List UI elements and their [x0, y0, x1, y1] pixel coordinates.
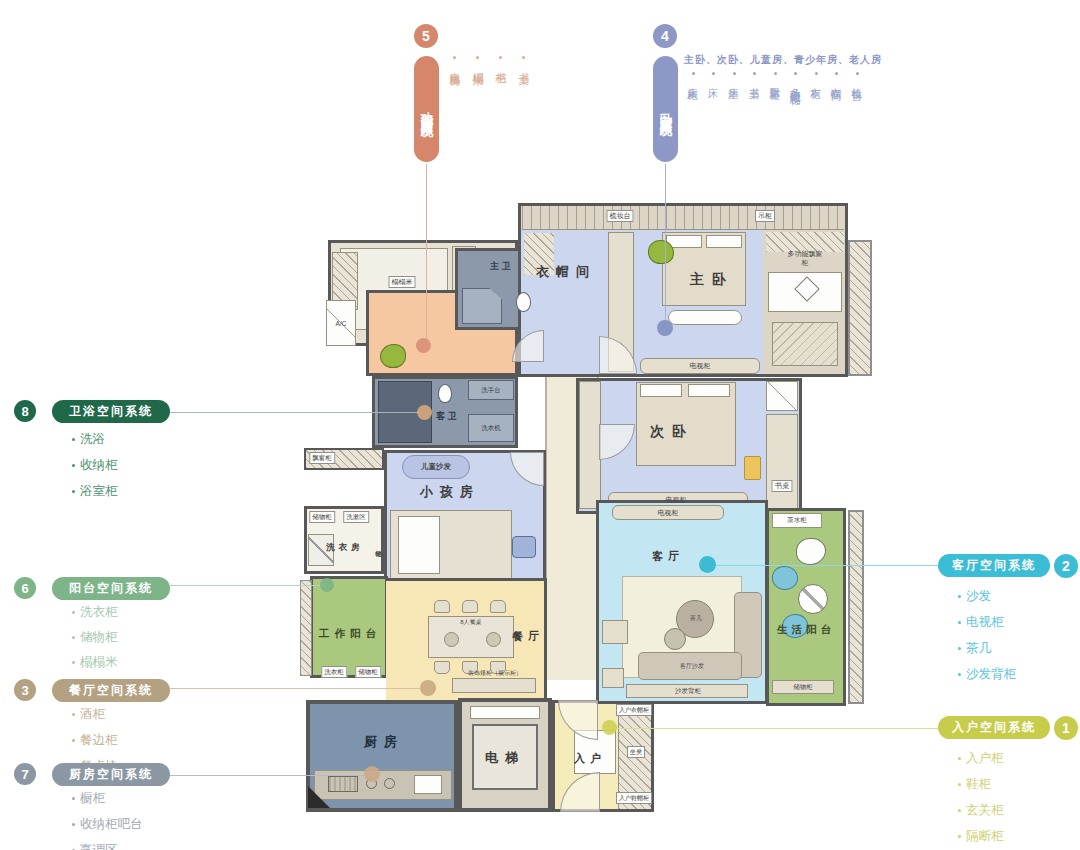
label-laundry-cabinet: 洗衣柜: [321, 666, 347, 678]
leader-line-functional: [426, 164, 427, 346]
low-cabinet: [452, 678, 536, 693]
leader-line-dining: [170, 688, 420, 689]
list-item: 洗衣柜: [80, 604, 118, 621]
callout-items-entry: 入户柜 鞋柜 玄关柜 隔断柜: [958, 750, 1004, 845]
label-tea-cabinet: 茶水柜: [787, 516, 807, 525]
callout-header-bedroom: 主卧、次卧、儿童房、青少年房、老人房: [684, 53, 882, 67]
ac-closet-2: [766, 381, 798, 411]
callout-number-living: 2: [1054, 554, 1078, 578]
list-item: 隔断柜: [966, 828, 1004, 845]
toilet-2: [438, 384, 452, 403]
room-label-entry: 入户: [574, 751, 606, 766]
marker-dot-living: [699, 556, 716, 573]
label-tv-cabinet-living: 电视柜: [658, 508, 679, 518]
list-item: 电视柜: [966, 614, 1004, 631]
room-label-master-bath: 主卫: [490, 260, 514, 273]
list-item: 餐边柜: [80, 732, 118, 749]
room-label-work-balcony: 工作阳台: [319, 627, 381, 641]
callout-items-bedroom: 床头柜 床 床垫 书桌 飘窗柜 多功能电视柜 衣柜 衣帽间 梳妆台: [686, 72, 864, 88]
toilet: [516, 292, 531, 312]
callout-title-bedroom: 卧室空间系统: [653, 56, 678, 162]
room-label-cloakroom: 衣帽间: [536, 263, 596, 281]
label-bay-window-cabinet-multi: 多功能飘窗柜: [785, 249, 825, 267]
marker-dot-functional: [416, 338, 431, 353]
stove-grill: [328, 776, 358, 792]
callout-title-living: 客厅空间系统: [938, 554, 1050, 577]
list-item: 鞋柜: [966, 776, 991, 793]
label-tv-cabinet: 电视柜: [666, 495, 687, 505]
leader-line-balcony: [170, 585, 324, 586]
label-hanging-cabinet: 吊柜: [755, 210, 775, 222]
leader-line-bedroom: [665, 164, 666, 328]
chaise: [772, 322, 838, 366]
list-item: 梳妆台: [850, 79, 864, 84]
label-living-sofa: 客厅沙发: [680, 662, 704, 671]
balcony-chair-blue: [772, 566, 798, 590]
room-label-guest-bath: 客卫: [436, 410, 460, 423]
kids-desk-chair: [512, 536, 536, 558]
room-label-laundry: 洗衣房: [326, 542, 364, 554]
chair: [434, 661, 450, 674]
list-item: 书桌: [748, 79, 762, 82]
callout-title-entry: 入户空间系统: [938, 716, 1050, 739]
chair: [434, 600, 450, 613]
marker-dot-kitchen: [364, 766, 380, 782]
list-item: 橱柜: [80, 790, 105, 807]
chair: [462, 600, 478, 613]
balcony-window-hatch: [300, 580, 312, 676]
desk-zone: [766, 414, 798, 509]
room-label-master-bedroom: 主卧: [690, 271, 734, 289]
bed-bench: [668, 310, 742, 325]
bedroom-chair: [648, 240, 674, 264]
room-label-kids: 小孩房: [420, 483, 480, 501]
label-entry-coat-cabinet: 入户衣帽柜: [616, 704, 652, 716]
marker-dot-bath: [417, 405, 432, 420]
callout-number-functional: 5: [414, 24, 438, 48]
list-item: 书柜: [493, 63, 508, 66]
label-bench: 坐凳: [627, 746, 645, 758]
list-item: 玄关柜: [966, 802, 1004, 819]
bay-window-right-top: [848, 240, 872, 376]
kitchen-sink: [414, 775, 442, 794]
callout-number-entry: 1: [1054, 716, 1078, 740]
top-cabinet-strip: [522, 206, 844, 230]
list-item: 电脑椅: [447, 63, 462, 68]
label-bay-window-cabinet: 飘窗柜: [309, 452, 335, 464]
list-item: 洗浴: [80, 431, 105, 448]
callout-number-bedroom: 4: [653, 24, 677, 48]
label-storage-cabinet-2: 储物柜: [355, 666, 381, 678]
list-item: 储物柜: [80, 629, 118, 646]
balcony-table: [798, 584, 828, 614]
callout-title-functional: 功能房空间系统: [414, 56, 439, 162]
list-item: 榻榻米: [470, 63, 485, 68]
room-label-living: 客厅: [652, 549, 684, 564]
list-item: 床垫: [727, 79, 741, 82]
elevator-vent: [470, 706, 540, 719]
label-ac: A/C: [336, 320, 347, 327]
list-item: 飘窗柜: [768, 79, 782, 84]
list-item: 收纳柜吧台: [80, 816, 143, 833]
list-item: 浴室柜: [80, 483, 118, 500]
label-wash-basin: 洗手台: [481, 386, 501, 395]
kids-mattress: [398, 516, 440, 574]
floorplan-infographic: 5 功能房空间系统 电脑椅 榻榻米 书柜 书桌 4 卧室空间系统 主卧、次卧、儿…: [0, 0, 1080, 850]
list-item: 沙发: [966, 588, 991, 605]
callout-items-bath: 洗浴 收纳柜 浴室柜: [72, 431, 118, 500]
label-dresser: 梳妆台: [607, 210, 634, 222]
pillow: [688, 384, 730, 397]
table-decor: [444, 632, 459, 647]
callout-title-dining: 餐厅空间系统: [52, 679, 170, 702]
list-item: 烹调区: [80, 842, 118, 850]
desk-chair: [380, 344, 406, 368]
list-item: 床头柜: [686, 79, 700, 84]
callout-title-balcony: 阳台空间系统: [52, 577, 170, 600]
leader-line-living: [714, 565, 938, 566]
room-label-life-balcony: 生活阳台: [777, 623, 835, 637]
leader-line-entry: [616, 728, 938, 729]
list-item: 榻榻米: [80, 654, 118, 671]
callout-number-balcony: 6: [14, 577, 36, 599]
label-coffee-table: 茶几: [690, 614, 702, 623]
label-desk: 书桌: [772, 480, 793, 492]
list-item: 衣帽间: [830, 79, 844, 84]
list-item: 床: [707, 79, 721, 81]
desk-chair-mat: [744, 456, 761, 480]
list-item: 酒柜: [80, 706, 105, 723]
list-item: 多功能电视柜: [789, 79, 803, 88]
callout-title-bath: 卫浴空间系统: [52, 400, 170, 423]
chair: [490, 600, 506, 613]
callout-items-kitchen: 橱柜 收纳柜吧台 烹调区: [72, 790, 143, 850]
room-label-second-bedroom: 次卧: [650, 423, 694, 441]
coffee-table-small: [664, 628, 686, 650]
marker-dot-balcony: [320, 578, 334, 592]
label-tv-cabinet: 电视柜: [690, 361, 711, 371]
label-storage-cabinet-3: 储物柜: [793, 683, 813, 692]
burner: [384, 778, 395, 789]
callout-items-functional: 电脑椅 榻榻米 书柜 书桌: [447, 56, 531, 68]
label-dining-table: 8人餐桌: [460, 618, 481, 627]
label-low-display-cabinet: 装饰矮柜（展示柜）: [468, 669, 522, 678]
side-table: [602, 620, 628, 644]
list-item: 书桌: [516, 63, 531, 66]
label-washing-machine: 洗衣机: [481, 424, 501, 433]
pillow: [640, 384, 682, 397]
callout-items-living: 沙发 电视柜 茶几 沙发背柜: [958, 588, 1016, 683]
leader-line-kitchen: [170, 775, 366, 776]
room-label-tatami: 榻榻米: [389, 276, 416, 288]
label-storage-cabinet: 储物柜: [309, 511, 335, 523]
room-label-dining: 餐厅: [512, 629, 544, 644]
list-item: 入户柜: [966, 750, 1004, 767]
side-table-2: [602, 668, 624, 688]
callout-number-kitchen: 7: [14, 763, 36, 785]
label-sofa-back-cabinet: 沙发背柜: [675, 687, 701, 696]
table-decor: [486, 632, 501, 647]
leader-line-bath: [170, 412, 420, 413]
list-item: 收纳柜: [80, 457, 118, 474]
pillow: [706, 235, 742, 248]
label-entry-shoe-cabinet: 入户鞋帽柜: [616, 792, 652, 804]
room-label-kitchen: 厨房: [364, 733, 404, 751]
callout-number-bath: 8: [14, 400, 36, 422]
list-item: 茶几: [966, 640, 991, 657]
list-item: 沙发背柜: [966, 666, 1016, 683]
callout-number-dining: 3: [14, 679, 36, 701]
label-wash-area: 洗漱区: [343, 511, 369, 523]
marker-dot-bedroom: [657, 320, 673, 336]
list-item: 衣柜: [809, 79, 823, 82]
marker-dot-dining: [420, 680, 436, 696]
room-label-elevator: 电梯: [485, 749, 525, 767]
label-kids-sofa: 儿童沙发: [421, 462, 451, 472]
second-bedroom-closet: [579, 381, 601, 509]
callout-title-kitchen: 厨房空间系统: [52, 763, 170, 786]
marker-dot-entry: [602, 720, 617, 735]
bay-window-right-bottom: [848, 510, 864, 704]
